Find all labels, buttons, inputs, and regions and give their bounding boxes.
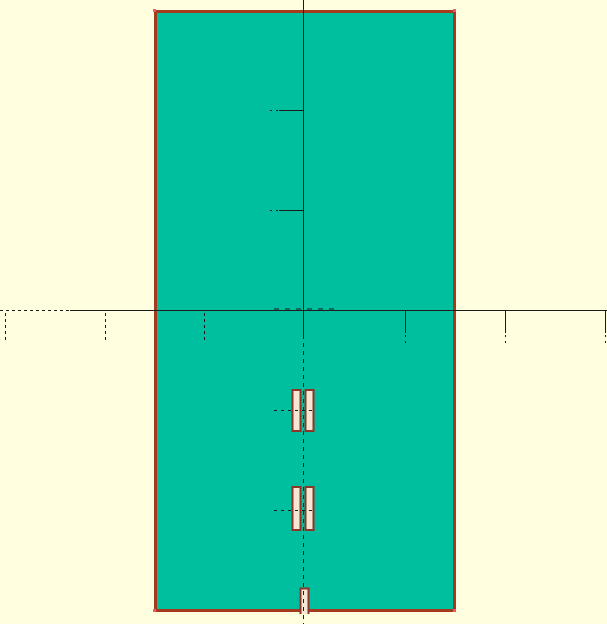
smd-pad[interactable] bbox=[293, 487, 301, 530]
smd-pad[interactable] bbox=[306, 487, 314, 530]
cad-canvas[interactable] bbox=[0, 0, 607, 624]
board-corner-marker bbox=[153, 609, 156, 612]
edge-notch-pad[interactable] bbox=[301, 589, 309, 615]
board-corner-marker bbox=[453, 9, 456, 12]
board-corner-marker bbox=[153, 9, 156, 12]
drawing-svg bbox=[0, 0, 607, 624]
board-corner-marker bbox=[453, 609, 456, 612]
